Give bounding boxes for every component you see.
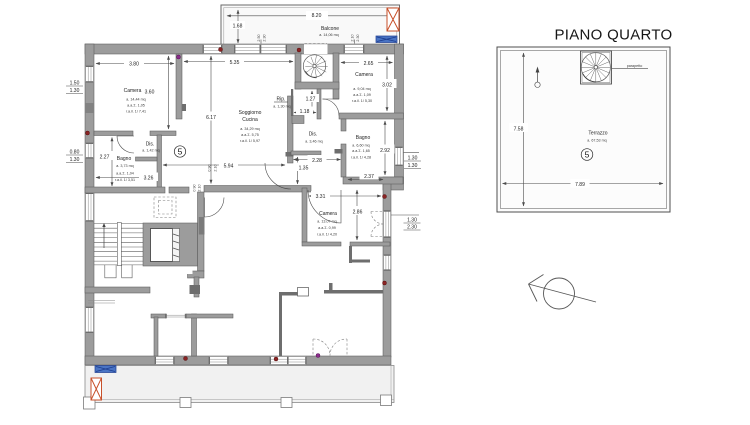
svg-text:Bagno: Bagno (356, 135, 371, 141)
svg-text:a. 3,46 mq: a. 3,46 mq (305, 140, 322, 144)
svg-text:a.a.Σ. 1,05: a.a.Σ. 1,05 (127, 104, 145, 108)
svg-text:2.92: 2.92 (380, 148, 390, 154)
svg-text:2.30: 2.30 (407, 225, 417, 231)
svg-text:Camera: Camera (124, 88, 142, 94)
svg-text:a. 13,07 mq: a. 13,07 mq (317, 220, 336, 224)
svg-text:Dis.: Dis. (146, 142, 155, 148)
svg-text:Soggiorno: Soggiorno (239, 110, 262, 116)
svg-text:Camera: Camera (319, 211, 337, 217)
svg-text:Bagno: Bagno (117, 156, 132, 162)
svg-text:2.65: 2.65 (364, 61, 374, 67)
svg-text:1.30: 1.30 (408, 156, 418, 162)
svg-text:a. 6,60 mq: a. 6,60 mq (352, 144, 369, 148)
svg-text:3.60: 3.60 (145, 90, 155, 96)
svg-text:2.10: 2.10 (214, 164, 218, 171)
svg-text:1.27: 1.27 (306, 97, 316, 103)
svg-text:r.a.il. 1/ 7,41: r.a.il. 1/ 7,41 (126, 110, 146, 114)
svg-text:2.30: 2.30 (263, 34, 267, 41)
svg-text:5: 5 (178, 147, 183, 157)
svg-text:3.80: 3.80 (129, 62, 139, 68)
svg-text:Cucina: Cucina (242, 117, 258, 123)
svg-text:a.a.Σ. 1,65: a.a.Σ. 1,65 (352, 149, 370, 153)
svg-text:1.68: 1.68 (233, 24, 243, 30)
svg-text:Terrazzo: Terrazzo (588, 131, 607, 137)
svg-text:5.94: 5.94 (224, 164, 234, 170)
svg-text:2.30: 2.30 (356, 34, 360, 41)
svg-text:2.27: 2.27 (100, 155, 110, 161)
svg-text:0.90: 0.90 (193, 184, 197, 191)
svg-text:a.a.Σ. 1,09: a.a.Σ. 1,09 (353, 93, 371, 97)
svg-text:2.10: 2.10 (198, 184, 202, 191)
svg-text:a. 3,73 mq: a. 3,73 mq (116, 164, 133, 168)
svg-text:a. 1,42 mq: a. 1,42 mq (142, 149, 159, 153)
svg-text:r.a.il. 1/ 5,97: r.a.il. 1/ 5,97 (240, 139, 260, 143)
svg-text:1.50: 1.50 (70, 81, 80, 87)
svg-text:r.a.il. 1/ 5,30: r.a.il. 1/ 5,30 (352, 99, 372, 103)
svg-text:1.30: 1.30 (70, 157, 80, 163)
svg-text:Dis.: Dis. (309, 132, 318, 138)
svg-text:2.86: 2.86 (353, 210, 363, 216)
svg-text:8.20: 8.20 (312, 13, 322, 19)
svg-text:a. 67,53 mq: a. 67,53 mq (587, 139, 606, 143)
svg-text:a.a.Σ. 5,75: a.a.Σ. 5,75 (241, 133, 259, 137)
svg-text:r.a.il. 1/ 3,51: r.a.il. 1/ 3,51 (115, 178, 135, 182)
svg-text:1.35: 1.35 (299, 166, 309, 172)
svg-text:Balcone: Balcone (321, 26, 339, 32)
svg-text:1.30: 1.30 (408, 163, 418, 169)
svg-text:2.10: 2.10 (351, 34, 355, 41)
svg-text:5: 5 (585, 150, 590, 160)
svg-text:parapetto: parapetto (627, 64, 643, 68)
svg-text:a.a.Σ. 0,99: a.a.Σ. 0,99 (318, 226, 336, 230)
svg-text:2.37: 2.37 (364, 174, 374, 180)
svg-text:2.28: 2.28 (312, 158, 322, 164)
svg-text:1.30: 1.30 (407, 218, 417, 224)
svg-text:a. 9,04 mq: a. 9,04 mq (353, 87, 370, 91)
svg-text:Rip.: Rip. (277, 97, 286, 103)
svg-text:1.30: 1.30 (70, 88, 80, 94)
svg-text:0.80: 0.80 (70, 150, 80, 156)
svg-text:a. 1,30 mq: a. 1,30 mq (273, 105, 290, 109)
svg-text:6.17: 6.17 (206, 115, 216, 121)
svg-text:a. 14,06 mq: a. 14,06 mq (319, 33, 338, 37)
svg-text:5.35: 5.35 (230, 60, 240, 66)
svg-text:a. 14,44 mq: a. 14,44 mq (126, 98, 145, 102)
svg-text:3.02: 3.02 (382, 83, 392, 89)
svg-text:3.26: 3.26 (144, 176, 154, 182)
svg-text:7.89: 7.89 (575, 182, 585, 188)
svg-text:2.50: 2.50 (257, 34, 261, 41)
svg-text:3.31: 3.31 (316, 194, 326, 200)
svg-text:1.18: 1.18 (300, 109, 310, 115)
svg-text:Camera: Camera (355, 72, 373, 78)
svg-text:7.58: 7.58 (514, 127, 524, 133)
svg-text:a.a.Σ. 1,04: a.a.Σ. 1,04 (116, 172, 134, 176)
svg-text:r.a.il. 1/ 4,20: r.a.il. 1/ 4,20 (317, 233, 337, 237)
svg-text:r.a.il. 1/ 4,28: r.a.il. 1/ 4,28 (351, 156, 371, 160)
svg-text:a. 34,29 mq: a. 34,29 mq (240, 127, 259, 131)
svg-text:PIANO QUARTO: PIANO QUARTO (554, 27, 672, 44)
